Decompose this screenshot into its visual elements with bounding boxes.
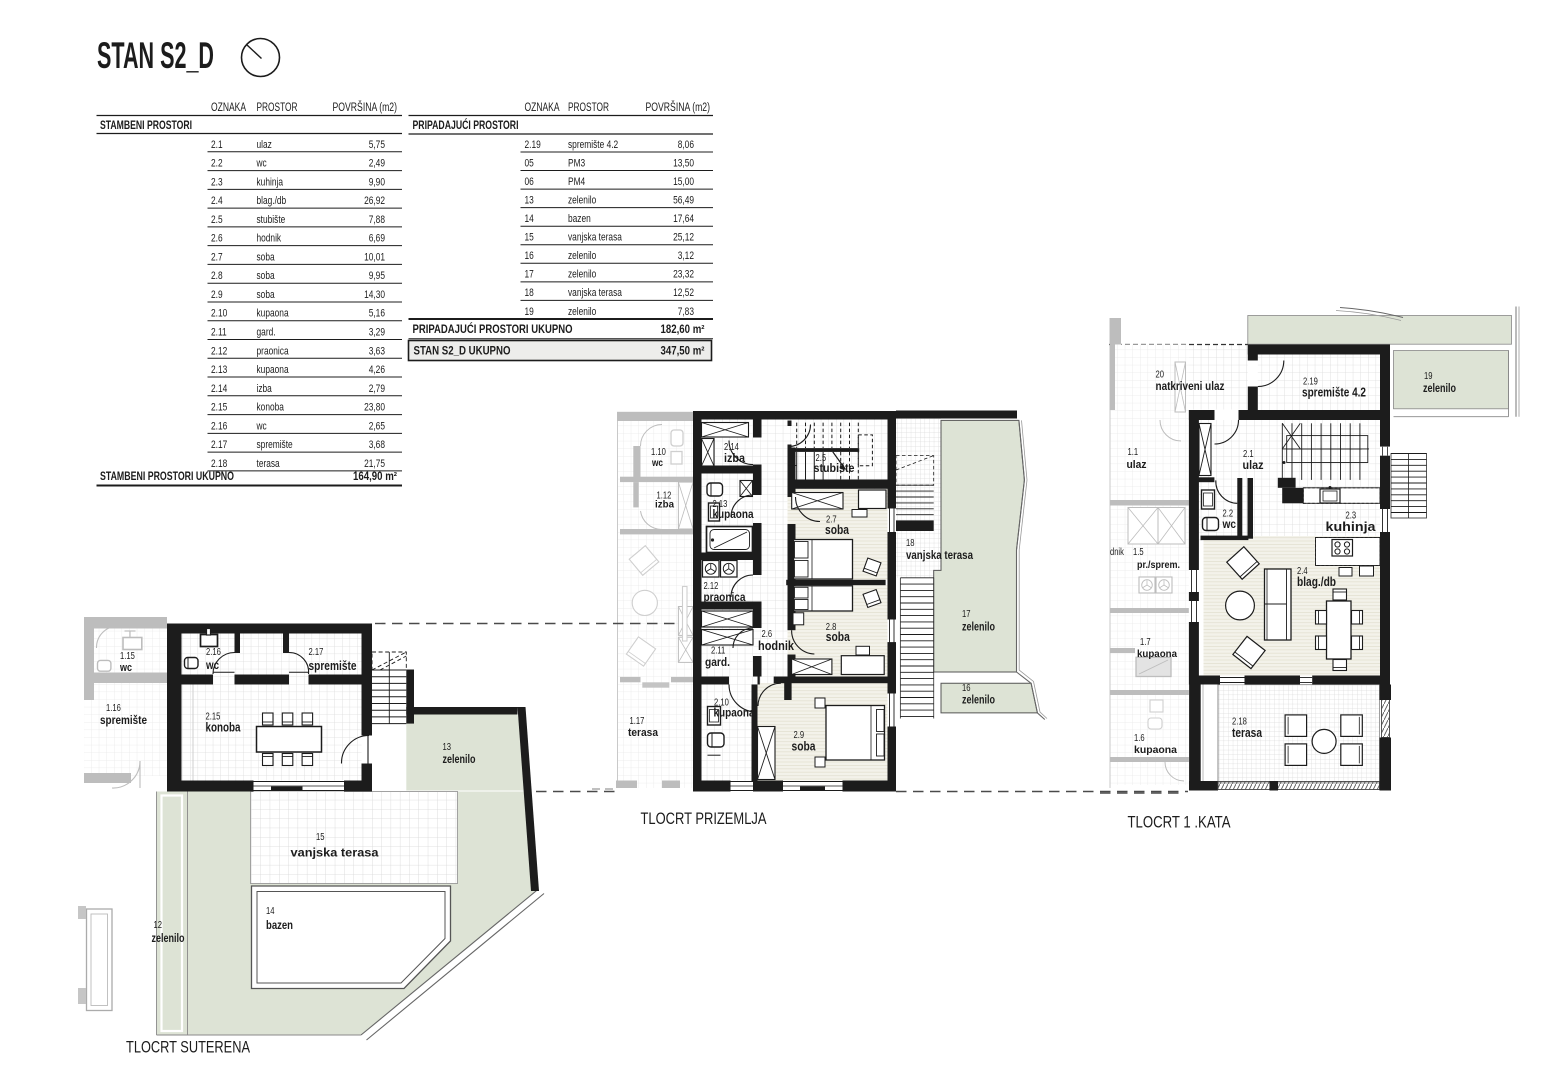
svg-text:PROSTOR: PROSTOR xyxy=(257,102,298,114)
svg-text:hodnik: hodnik xyxy=(257,233,282,245)
svg-text:18: 18 xyxy=(906,538,915,549)
svg-text:natkriveni ulaz: natkriveni ulaz xyxy=(1156,381,1225,393)
svg-text:dnik: dnik xyxy=(1110,547,1125,558)
svg-text:ulaz: ulaz xyxy=(1127,459,1147,471)
svg-text:wc: wc xyxy=(205,658,219,672)
svg-text:spremište 4.2: spremište 4.2 xyxy=(568,139,618,151)
svg-text:14: 14 xyxy=(525,213,534,225)
svg-text:14: 14 xyxy=(266,906,275,917)
svg-text:praonica: praonica xyxy=(257,345,290,357)
svg-text:STAMBENI PROSTORI: STAMBENI PROSTORI xyxy=(100,120,192,132)
svg-text:wc: wc xyxy=(119,662,132,674)
svg-text:POVRŠINA (m2): POVRŠINA (m2) xyxy=(333,101,398,114)
svg-text:5,75: 5,75 xyxy=(369,139,385,151)
svg-text:2.8: 2.8 xyxy=(211,270,223,282)
svg-text:spremište 4.2: spremište 4.2 xyxy=(1302,386,1366,400)
svg-text:PRIPADAJUĆI PROSTORI: PRIPADAJUĆI PROSTORI xyxy=(413,119,519,132)
svg-text:spremište: spremište xyxy=(309,659,357,673)
svg-text:10,01: 10,01 xyxy=(364,251,385,263)
svg-text:2.7: 2.7 xyxy=(211,251,223,263)
svg-text:kupaona: kupaona xyxy=(257,308,290,320)
svg-text:1.17: 1.17 xyxy=(630,716,645,727)
svg-text:blag./db: blag./db xyxy=(1297,575,1336,589)
svg-text:13,50: 13,50 xyxy=(673,157,694,169)
svg-text:17: 17 xyxy=(962,609,971,620)
svg-text:zelenilo: zelenilo xyxy=(962,622,995,634)
svg-text:3,29: 3,29 xyxy=(369,327,385,339)
svg-text:vanjska terasa: vanjska terasa xyxy=(906,550,973,562)
svg-text:06: 06 xyxy=(525,176,534,188)
svg-text:2,79: 2,79 xyxy=(369,383,385,395)
svg-text:3,68: 3,68 xyxy=(369,439,385,451)
svg-text:izba: izba xyxy=(655,499,674,511)
svg-text:347,50 m²: 347,50 m² xyxy=(661,346,705,358)
svg-text:zelenilo: zelenilo xyxy=(1423,383,1456,395)
svg-text:13: 13 xyxy=(443,742,452,753)
svg-text:TLOCRT 1 .KATA: TLOCRT 1 .KATA xyxy=(1128,814,1231,832)
svg-text:TLOCRT PRIZEMLJA: TLOCRT PRIZEMLJA xyxy=(641,810,767,828)
svg-text:zelenilo: zelenilo xyxy=(568,194,596,206)
svg-text:spremište: spremište xyxy=(100,715,147,727)
svg-text:konoba: konoba xyxy=(257,402,285,414)
svg-text:17,64: 17,64 xyxy=(673,213,694,225)
svg-text:soba: soba xyxy=(257,289,276,301)
svg-text:kupaona: kupaona xyxy=(1134,744,1177,756)
svg-text:5,16: 5,16 xyxy=(369,308,385,320)
svg-text:20: 20 xyxy=(1156,370,1165,381)
svg-text:2.18: 2.18 xyxy=(211,458,227,470)
svg-text:STAN S2_D UKUPNO: STAN S2_D UKUPNO xyxy=(414,346,511,358)
svg-text:terasa: terasa xyxy=(1232,726,1263,740)
svg-text:12,52: 12,52 xyxy=(673,287,694,299)
svg-text:2.5: 2.5 xyxy=(211,214,223,226)
svg-text:kupaona: kupaona xyxy=(713,507,754,521)
svg-text:16: 16 xyxy=(962,683,971,694)
svg-text:2.10: 2.10 xyxy=(211,308,227,320)
svg-text:wc: wc xyxy=(651,457,663,469)
svg-text:26,92: 26,92 xyxy=(364,195,385,207)
svg-text:2.4: 2.4 xyxy=(211,195,223,207)
svg-text:15,00: 15,00 xyxy=(673,176,694,188)
svg-text:2.16: 2.16 xyxy=(211,420,227,432)
svg-text:blag./db: blag./db xyxy=(257,195,287,207)
svg-text:16: 16 xyxy=(525,250,534,262)
svg-text:2.14: 2.14 xyxy=(211,383,227,395)
svg-text:PRIPADAJUĆI PROSTORI UKUPNO: PRIPADAJUĆI PROSTORI UKUPNO xyxy=(413,323,573,336)
svg-text:15: 15 xyxy=(316,832,325,843)
svg-text:konoba: konoba xyxy=(206,721,242,735)
svg-text:TLOCRT SUTERENA: TLOCRT SUTERENA xyxy=(126,1039,250,1057)
svg-text:vanjska terasa: vanjska terasa xyxy=(568,287,623,299)
svg-text:1.15: 1.15 xyxy=(120,651,135,662)
svg-text:zelenilo: zelenilo xyxy=(962,695,995,707)
svg-text:2.1: 2.1 xyxy=(211,139,223,151)
svg-text:18: 18 xyxy=(525,287,534,299)
svg-text:21,75: 21,75 xyxy=(364,458,385,470)
svg-text:23,80: 23,80 xyxy=(364,402,385,414)
svg-text:13: 13 xyxy=(525,194,534,206)
svg-text:bazen: bazen xyxy=(568,213,591,225)
svg-text:2.17: 2.17 xyxy=(309,647,324,658)
svg-text:2.15: 2.15 xyxy=(211,402,227,414)
svg-text:2.3: 2.3 xyxy=(211,176,223,188)
svg-text:19: 19 xyxy=(1424,371,1433,382)
svg-text:2.12: 2.12 xyxy=(211,345,227,357)
svg-text:ulaz: ulaz xyxy=(257,139,272,151)
svg-text:pr./sprem.: pr./sprem. xyxy=(1137,559,1180,571)
svg-text:vanjska terasa: vanjska terasa xyxy=(568,232,623,244)
svg-text:2.11: 2.11 xyxy=(211,327,227,339)
svg-text:vanjska terasa: vanjska terasa xyxy=(291,848,380,860)
svg-text:1.6: 1.6 xyxy=(1134,733,1145,744)
svg-text:2.13: 2.13 xyxy=(211,364,227,376)
svg-text:2,65: 2,65 xyxy=(369,420,385,432)
svg-text:PROSTOR: PROSTOR xyxy=(568,102,609,114)
svg-text:3,12: 3,12 xyxy=(678,250,694,262)
svg-text:soba: soba xyxy=(257,251,276,263)
svg-text:PM3: PM3 xyxy=(568,157,585,169)
svg-text:kupaona: kupaona xyxy=(257,364,290,376)
svg-text:15: 15 xyxy=(525,232,534,244)
svg-text:2.19: 2.19 xyxy=(525,139,541,151)
svg-text:stubište: stubište xyxy=(814,461,855,475)
svg-text:56,49: 56,49 xyxy=(673,194,694,206)
svg-text:8,06: 8,06 xyxy=(678,139,694,151)
svg-text:25,12: 25,12 xyxy=(673,232,694,244)
svg-text:terasa: terasa xyxy=(257,458,281,470)
svg-text:2.9: 2.9 xyxy=(211,289,223,301)
svg-text:terasa: terasa xyxy=(628,727,659,739)
svg-text:2.16: 2.16 xyxy=(206,647,221,658)
svg-text:kuhinja: kuhinja xyxy=(257,176,284,188)
svg-text:05: 05 xyxy=(525,157,534,169)
svg-text:1.5: 1.5 xyxy=(1133,547,1144,558)
svg-text:2.2: 2.2 xyxy=(211,158,223,170)
svg-text:bazen: bazen xyxy=(266,920,293,932)
svg-text:19: 19 xyxy=(525,306,534,318)
svg-text:3,63: 3,63 xyxy=(369,345,385,357)
svg-text:POVRŠINA (m2): POVRŠINA (m2) xyxy=(646,101,711,114)
svg-text:9,90: 9,90 xyxy=(369,176,385,188)
svg-text:STAN S2_D: STAN S2_D xyxy=(97,35,214,76)
svg-text:zelenilo: zelenilo xyxy=(568,269,596,281)
svg-text:wc: wc xyxy=(1222,517,1237,531)
svg-text:2,49: 2,49 xyxy=(369,158,385,170)
svg-text:9,95: 9,95 xyxy=(369,270,385,282)
svg-text:164,90 m²: 164,90 m² xyxy=(353,471,397,483)
svg-text:gard.: gard. xyxy=(257,327,276,339)
svg-text:7,83: 7,83 xyxy=(678,306,694,318)
svg-text:spremište: spremište xyxy=(257,439,293,451)
svg-text:wc: wc xyxy=(256,158,267,170)
svg-text:4,26: 4,26 xyxy=(369,364,385,376)
svg-text:zelenilo: zelenilo xyxy=(152,933,185,945)
svg-text:7,88: 7,88 xyxy=(369,214,385,226)
svg-text:1.16: 1.16 xyxy=(106,703,121,714)
svg-text:soba: soba xyxy=(792,740,817,754)
svg-text:1.1: 1.1 xyxy=(1128,447,1139,458)
svg-text:hodnik: hodnik xyxy=(758,639,794,653)
svg-text:kupaona: kupaona xyxy=(1137,648,1177,660)
svg-text:kuhinja: kuhinja xyxy=(1326,520,1377,534)
svg-text:gard.: gard. xyxy=(705,655,730,669)
svg-text:soba: soba xyxy=(826,630,851,644)
svg-text:6,69: 6,69 xyxy=(369,233,385,245)
svg-text:17: 17 xyxy=(525,269,534,281)
svg-text:2.17: 2.17 xyxy=(211,439,227,451)
svg-text:ulaz: ulaz xyxy=(1243,458,1264,472)
svg-text:wc: wc xyxy=(256,420,267,432)
svg-text:OZNAKA: OZNAKA xyxy=(525,102,560,114)
svg-text:soba: soba xyxy=(825,523,850,537)
svg-text:izba: izba xyxy=(257,383,273,395)
svg-text:PM4: PM4 xyxy=(568,176,585,188)
svg-text:12: 12 xyxy=(154,920,163,931)
svg-text:zelenilo: zelenilo xyxy=(568,306,596,318)
svg-text:STAMBENI PROSTORI UKUPNO: STAMBENI PROSTORI UKUPNO xyxy=(100,471,234,483)
svg-text:soba: soba xyxy=(257,270,276,282)
svg-text:182,60 m²: 182,60 m² xyxy=(661,324,705,336)
svg-text:praonica: praonica xyxy=(704,590,746,604)
svg-text:izba: izba xyxy=(724,451,745,465)
svg-text:1.7: 1.7 xyxy=(1140,637,1151,648)
svg-text:23,32: 23,32 xyxy=(673,269,694,281)
svg-text:14,30: 14,30 xyxy=(364,289,385,301)
svg-text:stubište: stubište xyxy=(257,214,286,226)
svg-text:2.6: 2.6 xyxy=(211,233,223,245)
svg-text:OZNAKA: OZNAKA xyxy=(211,102,246,114)
svg-text:zelenilo: zelenilo xyxy=(443,754,476,766)
svg-text:kupaona: kupaona xyxy=(714,706,755,720)
svg-text:zelenilo: zelenilo xyxy=(568,250,596,262)
